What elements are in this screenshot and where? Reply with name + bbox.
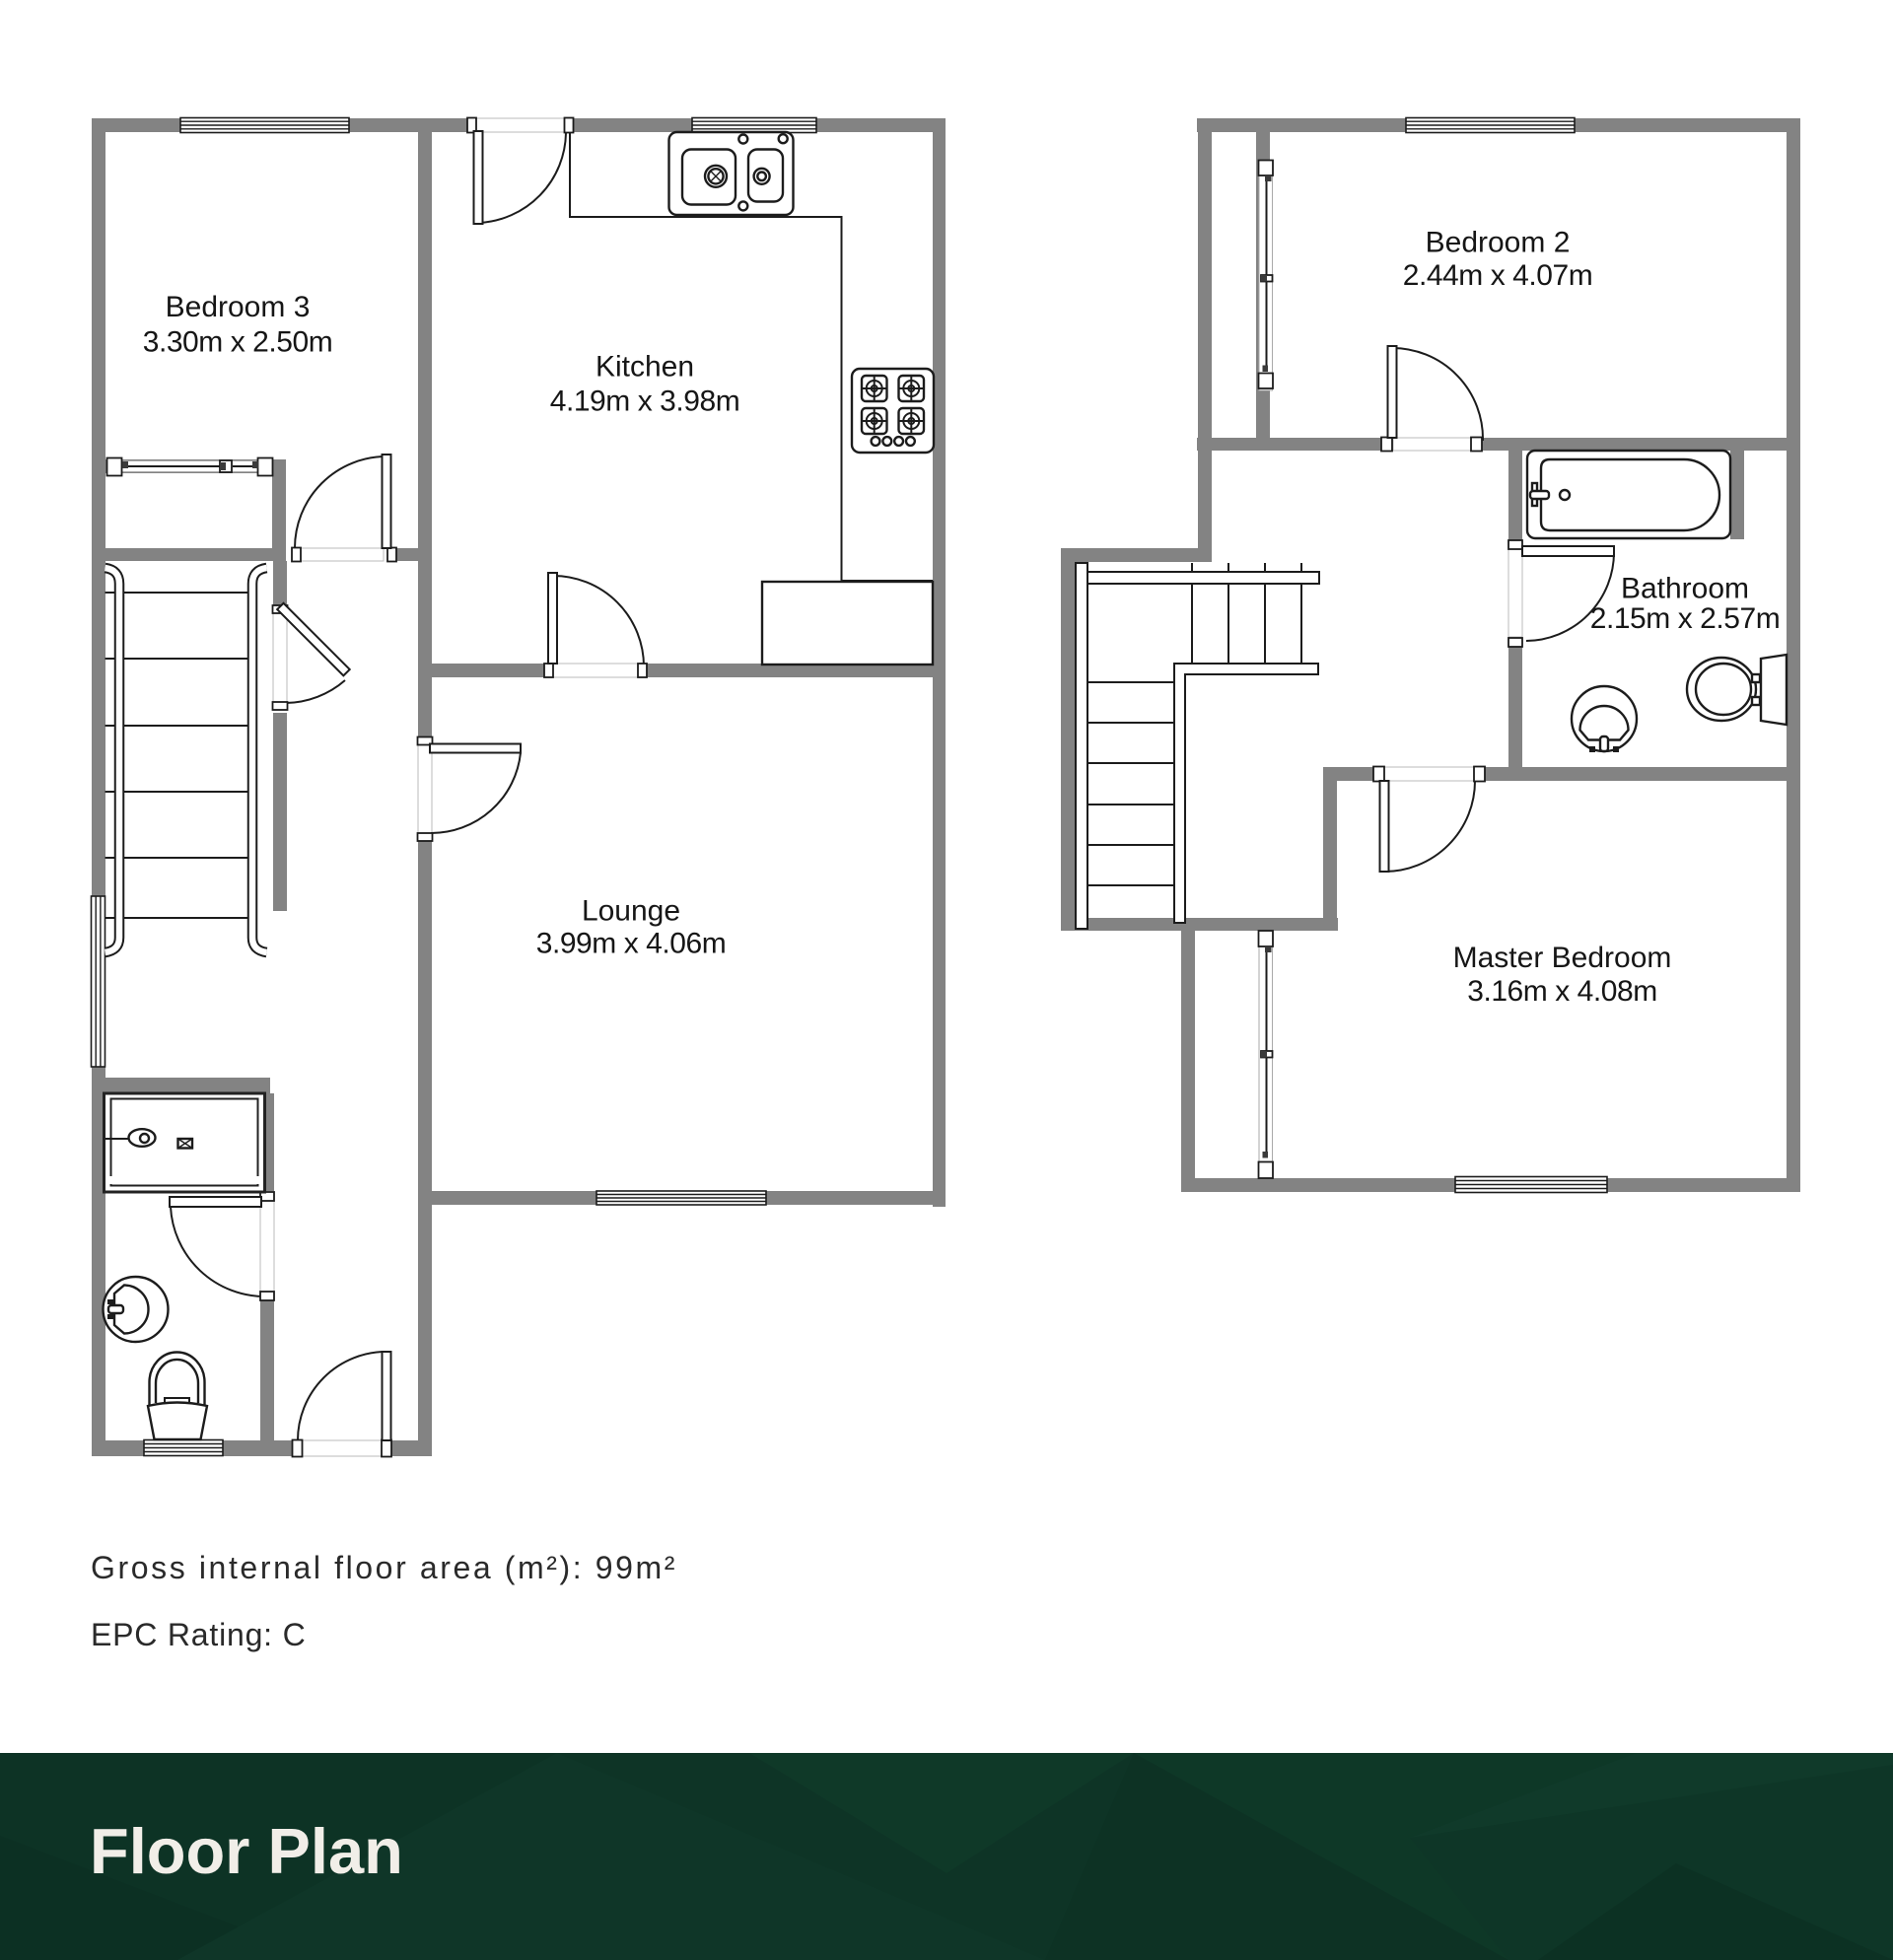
svg-text:3.16m x 4.08m: 3.16m x 4.08m — [1467, 975, 1657, 1008]
svg-text:2.15m x 2.57m: 2.15m x 2.57m — [1590, 602, 1781, 635]
svg-text:EPC Rating: C: EPC Rating: C — [91, 1617, 306, 1652]
svg-text:Bathroom: Bathroom — [1621, 573, 1749, 605]
svg-text:Bedroom 2: Bedroom 2 — [1426, 227, 1571, 259]
svg-text:Gross internal floor area (m²): Gross internal floor area (m²): 99m² — [91, 1550, 677, 1585]
svg-text:4.19m x 3.98m: 4.19m x 3.98m — [550, 385, 740, 418]
svg-text:Kitchen: Kitchen — [596, 351, 694, 384]
svg-text:Lounge: Lounge — [582, 895, 680, 928]
svg-text:3.99m x 4.06m: 3.99m x 4.06m — [536, 928, 727, 960]
svg-text:2.44m x 4.07m: 2.44m x 4.07m — [1403, 259, 1593, 292]
svg-text:Master Bedroom: Master Bedroom — [1453, 942, 1672, 974]
svg-text:Bedroom 3: Bedroom 3 — [166, 291, 311, 323]
svg-text:3.30m x 2.50m: 3.30m x 2.50m — [143, 326, 333, 359]
svg-text:Floor Plan: Floor Plan — [90, 1815, 403, 1887]
